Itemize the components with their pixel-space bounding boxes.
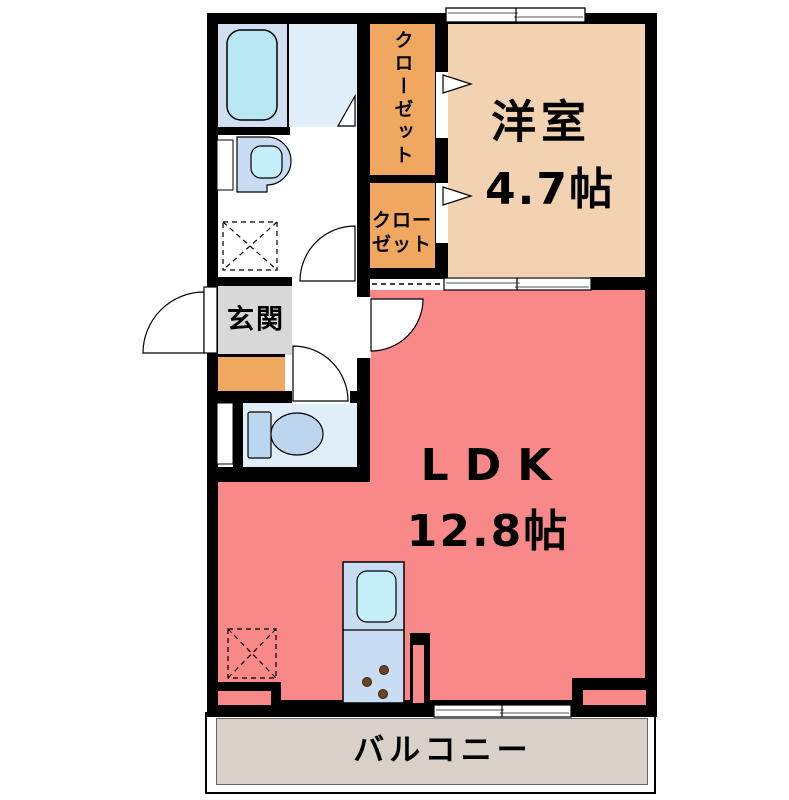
window-washroom bbox=[217, 140, 233, 190]
closet-upper-label: クローゼット bbox=[393, 30, 412, 168]
window-toilet bbox=[217, 403, 233, 464]
western-room-size: 4.7帖 bbox=[485, 168, 615, 212]
balcony-label: バルコニー bbox=[353, 736, 532, 767]
ldk-door bbox=[356, 297, 423, 358]
closet-upper-door bbox=[436, 72, 471, 138]
toilet-icon bbox=[248, 412, 323, 458]
sliding-door-western-room bbox=[444, 278, 591, 290]
open-boundary-dashed bbox=[370, 279, 446, 290]
kitchen-sink-icon bbox=[357, 571, 396, 622]
closet-lower-label-line2: ゼット bbox=[372, 236, 432, 255]
entrance-door bbox=[143, 287, 217, 353]
washroom-door bbox=[292, 226, 357, 287]
genkan-label: 玄関 bbox=[227, 307, 285, 334]
refrigerator-space-icon bbox=[228, 629, 276, 678]
bathtub-icon bbox=[227, 30, 277, 120]
closet-lower-door bbox=[436, 183, 471, 243]
window-western-room bbox=[446, 8, 585, 22]
floor-plan: 洋室 4.7帖 LDK 12.8帖 玄関 クローゼット クロー ゼット バルコニ… bbox=[0, 0, 789, 800]
ldk-size: 12.8帖 bbox=[407, 510, 570, 554]
washing-machine-space-icon bbox=[223, 222, 277, 270]
western-room-label: 洋室 bbox=[491, 100, 591, 145]
sliding-door-balcony bbox=[434, 705, 571, 717]
closet-lower-label-line1: クロー bbox=[372, 212, 432, 231]
kitchen-icon bbox=[343, 562, 404, 703]
toilet-door bbox=[292, 346, 350, 404]
washbasin-icon bbox=[237, 137, 291, 192]
ldk-label: LDK bbox=[421, 444, 568, 488]
bathroom-door bbox=[290, 96, 357, 136]
